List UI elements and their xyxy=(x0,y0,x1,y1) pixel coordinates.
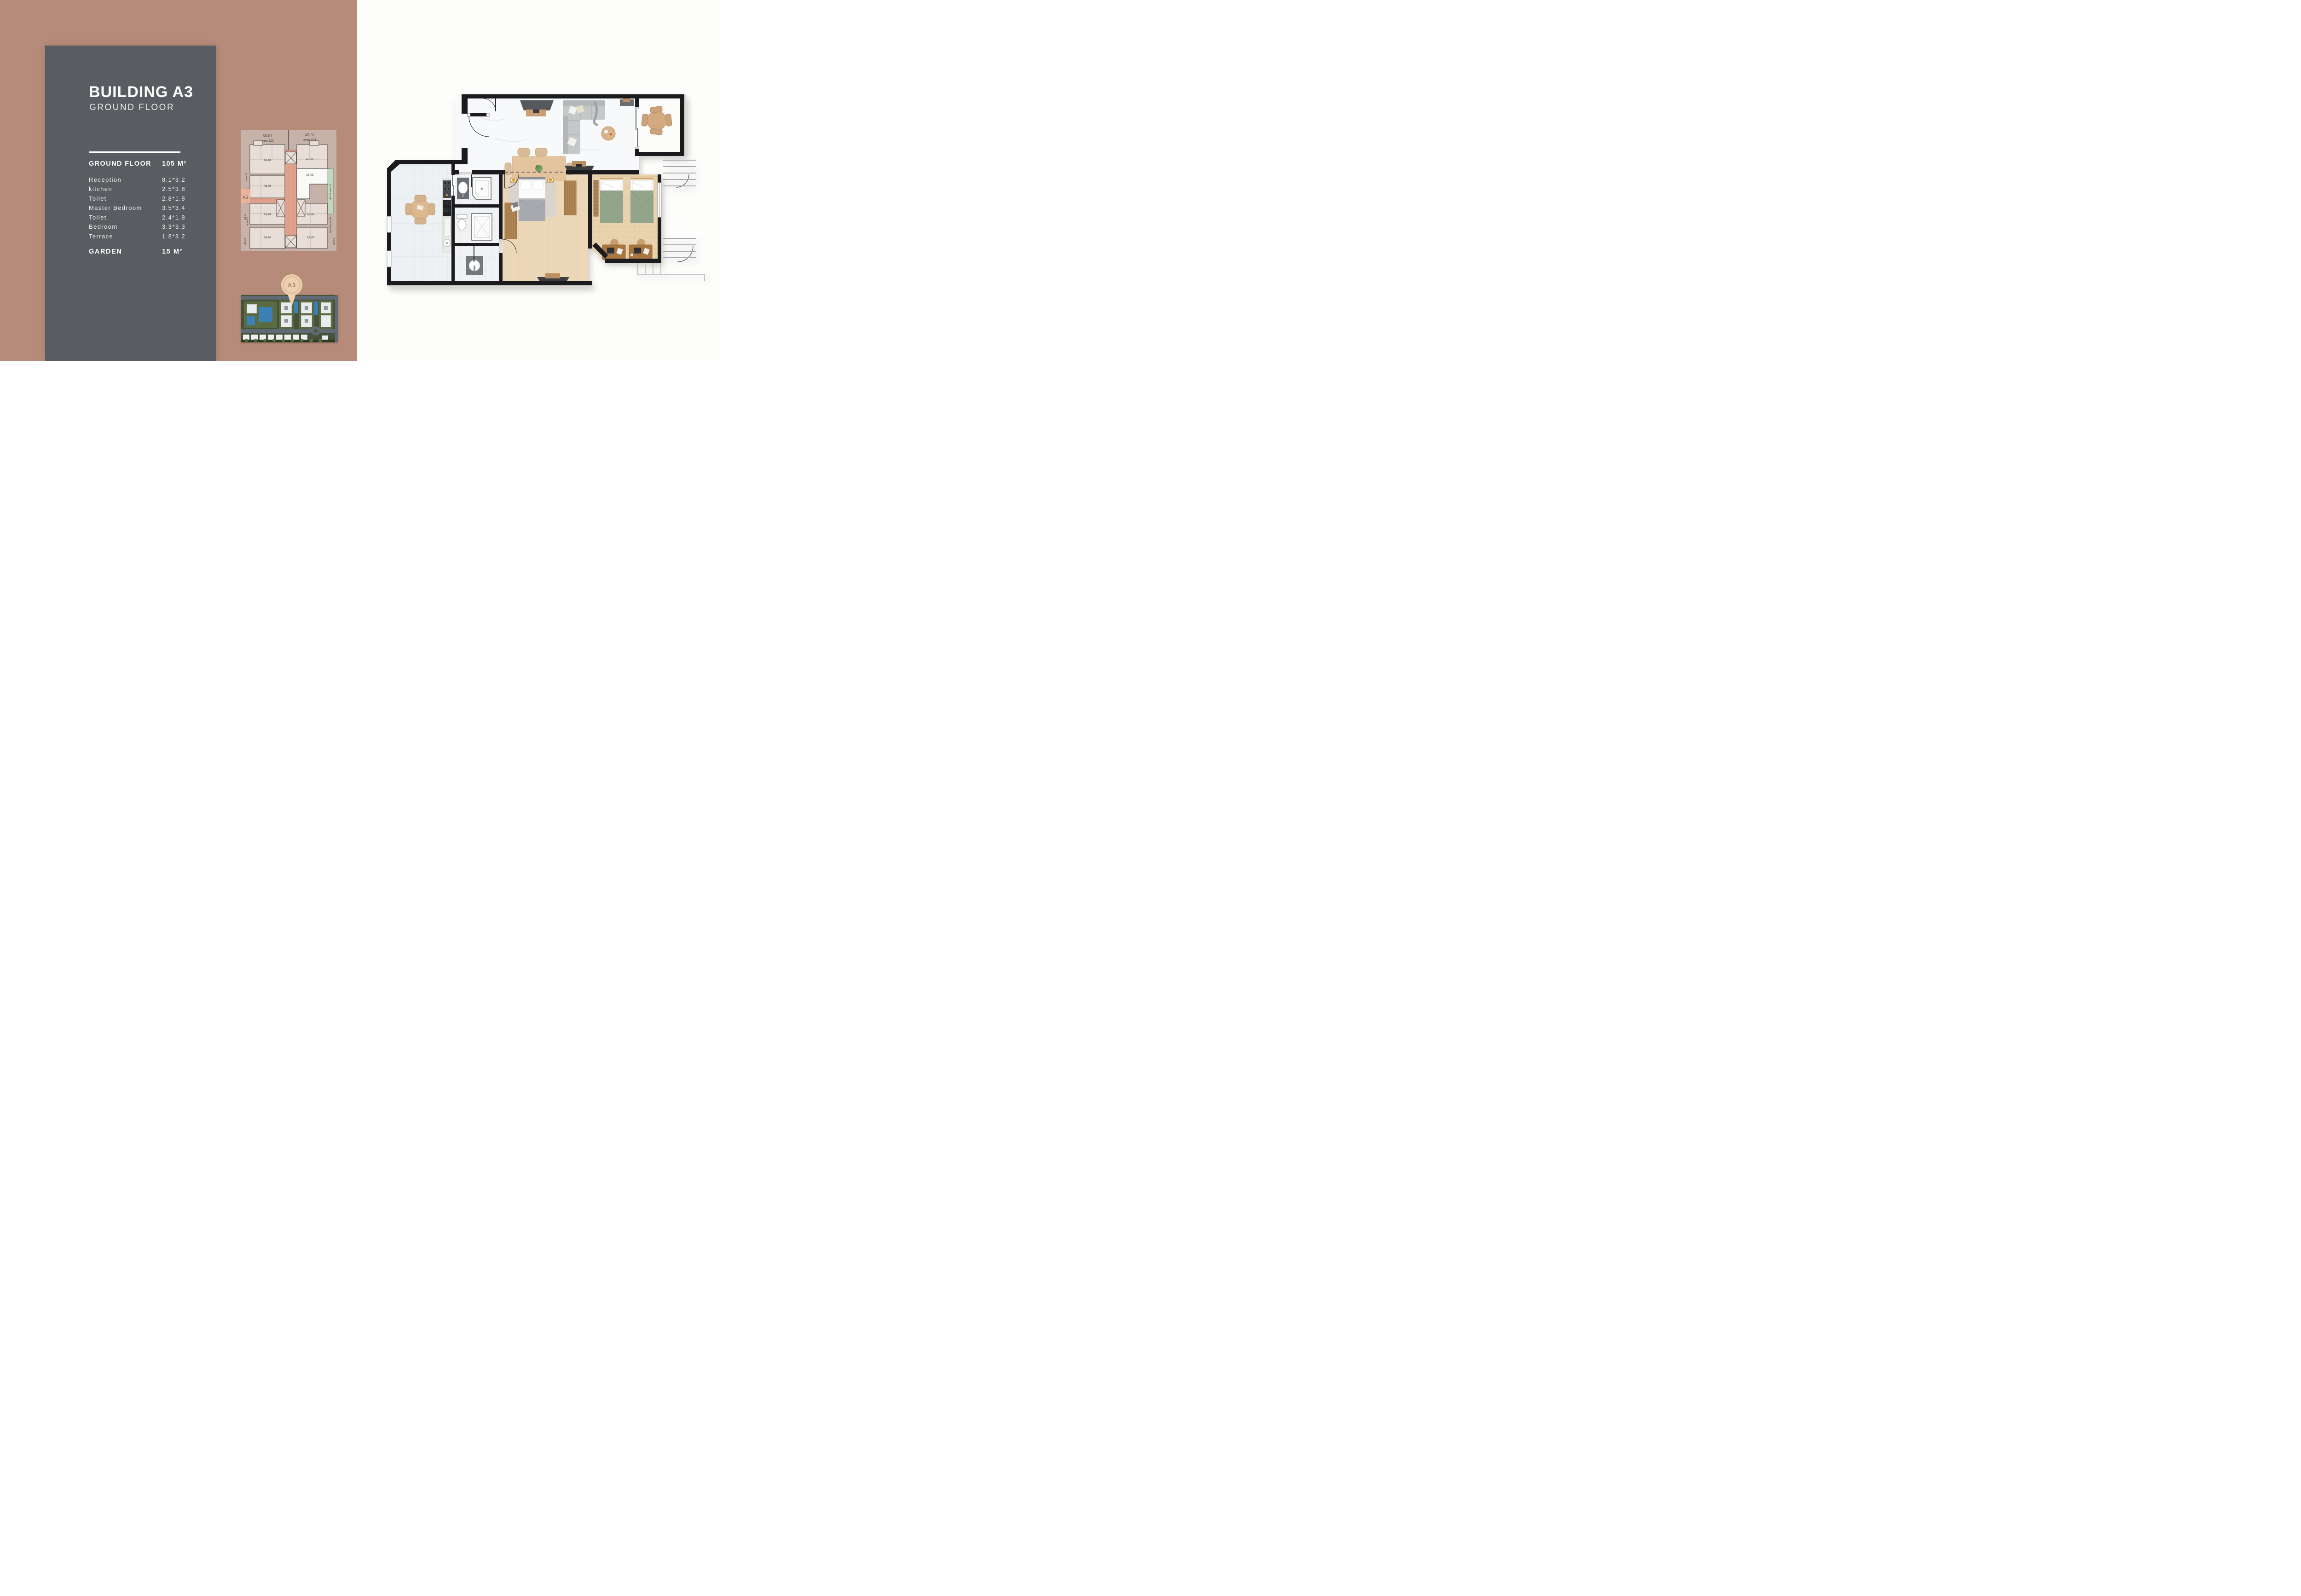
row-label: Bedroom xyxy=(89,223,162,230)
row-value: 2.5*3.8 xyxy=(162,185,185,192)
apartment-building xyxy=(321,315,331,327)
tree xyxy=(318,339,322,342)
wardrobe-strip xyxy=(594,180,598,216)
sink-drain xyxy=(446,242,448,244)
terrace-chair xyxy=(415,195,426,201)
wall-entry-left xyxy=(462,94,468,114)
roof-core xyxy=(324,306,328,310)
balcony-chair xyxy=(650,128,662,135)
lap-pool xyxy=(294,301,298,313)
svg-text:A3-05: A3-05 xyxy=(333,238,336,245)
table-tray xyxy=(416,205,424,211)
exterior-stairs-lower xyxy=(663,238,696,258)
table-row: kitchen 2.5*3.8 xyxy=(89,185,204,194)
washbasin xyxy=(458,182,468,194)
single-bed xyxy=(630,178,653,223)
table-row: Toilet 2.8*1.8 xyxy=(89,194,204,203)
row-label: Toilet xyxy=(89,214,162,221)
wall-top xyxy=(470,94,684,98)
garden-value: 15 M² xyxy=(162,248,183,255)
table-header-value: 105 M² xyxy=(162,160,187,168)
double-bed xyxy=(519,177,545,221)
roundabout-island xyxy=(314,329,318,333)
wall-bedroom-east xyxy=(658,174,661,183)
toilet-tank xyxy=(457,214,467,219)
wall-terrace-north xyxy=(395,160,468,164)
site-map-aerial xyxy=(241,295,338,342)
shower xyxy=(473,178,491,200)
tree xyxy=(282,339,285,342)
svg-text:A3-02: A3-02 xyxy=(306,158,314,161)
balcony-sliding-door xyxy=(635,107,639,149)
garden-fence xyxy=(637,263,705,281)
row-label: kitchen xyxy=(89,185,162,192)
kitchen-counter xyxy=(442,179,451,252)
page-title: BUILDING A3 xyxy=(89,83,193,101)
study-desk xyxy=(629,245,652,260)
wardrobe-right xyxy=(564,181,576,215)
building-entrance-tab: A3 xyxy=(241,189,250,203)
tab-label: A3 xyxy=(243,195,249,200)
terrace-chair xyxy=(415,218,426,224)
lap-pool xyxy=(314,301,318,315)
toilet-bowl xyxy=(458,219,466,230)
garden-row: GARDEN 15 M² xyxy=(89,248,204,255)
wall-bath-divider-2 xyxy=(455,243,499,246)
terrace-chair xyxy=(405,203,411,215)
row-label: Toilet xyxy=(89,195,162,202)
svg-text:A3-03: A3-03 xyxy=(306,173,314,177)
svg-text:area 15: area 15 xyxy=(245,173,248,181)
bathroom-top xyxy=(457,178,491,200)
table-plant-leaf xyxy=(536,165,538,168)
single-bed xyxy=(600,178,623,223)
tree xyxy=(300,339,303,342)
svg-text:A3-06: A3-06 xyxy=(264,236,272,239)
coffee-table xyxy=(601,127,615,140)
table-row: Master Bedroom 3.5*3.4 xyxy=(89,203,204,213)
villa xyxy=(284,335,291,340)
row-value: 2.8*1.8 xyxy=(162,195,185,202)
wall-terrace-divider xyxy=(451,164,455,175)
table-header-label: GROUND FLOOR xyxy=(89,160,162,168)
exterior-stairs-upper xyxy=(663,160,696,186)
balcony-chair xyxy=(665,114,672,126)
road-main xyxy=(241,329,338,333)
balcony-chair xyxy=(642,114,648,126)
info-panel: BUILDING A3 GROUND FLOOR GROUND FLOOR 10… xyxy=(45,46,216,361)
road-top xyxy=(241,296,338,300)
table-row: Bedroom 3.3*3.3 xyxy=(89,222,204,232)
key-header-right-unit: A3-02 xyxy=(305,133,315,137)
svg-text:area 21: area 21 xyxy=(246,217,249,226)
terrace-chair xyxy=(429,203,435,215)
row-value: 2.4*1.8 xyxy=(162,214,185,221)
clubhouse xyxy=(247,304,257,313)
wall-right-outer xyxy=(680,94,684,156)
row-value: 1.8*3.2 xyxy=(162,233,185,240)
brochure-page: BUILDING A3 GROUND FLOOR GROUND FLOOR 10… xyxy=(0,0,722,361)
small-pool xyxy=(247,316,255,325)
wall-lower-band xyxy=(472,170,505,174)
area-table: Reception 8.1*3.2 kitchen 2.5*3.8 Toilet… xyxy=(89,175,204,241)
svg-text:A3-04 area 18: A3-04 area 18 xyxy=(330,217,332,233)
induction-hob xyxy=(443,200,451,216)
shower-2 xyxy=(472,214,492,240)
area-table-header: GROUND FLOOR 105 M² xyxy=(89,160,204,168)
table-plant-leaf xyxy=(540,168,543,171)
table-row: Reception 8.1*3.2 xyxy=(89,175,204,185)
svg-text:A3-05: A3-05 xyxy=(307,236,315,239)
window-east xyxy=(658,183,661,217)
tree xyxy=(309,339,313,342)
main-pool xyxy=(259,307,272,322)
garden-label: GARDEN xyxy=(89,248,162,255)
wall-bottom xyxy=(387,281,592,285)
svg-text:A3-08: A3-08 xyxy=(264,185,272,188)
roof-core xyxy=(284,319,288,323)
building-key-plan: A3-01 area 120 A3-02 area 104 xyxy=(241,130,336,251)
roof-core xyxy=(305,306,308,310)
faucet-2 xyxy=(474,266,475,271)
tree xyxy=(272,339,276,342)
wall-balcony-divider xyxy=(635,94,639,108)
tree xyxy=(291,339,294,342)
svg-text:A3-03 area 18: A3-03 area 18 xyxy=(330,184,332,200)
roof-core xyxy=(305,319,308,323)
wall-bedroom-bottom xyxy=(605,259,661,263)
row-value: 8.1*3.2 xyxy=(162,176,185,183)
divider-rule xyxy=(89,151,180,153)
row-label: Terrace xyxy=(89,233,162,240)
key-header-left-unit: A3-01 xyxy=(262,134,272,138)
wall-balcony-bottom xyxy=(635,152,684,156)
row-label: Master Bedroom xyxy=(89,204,162,211)
row-value: 3.5*3.4 xyxy=(162,204,185,211)
gas-hob xyxy=(443,180,451,198)
roof-core xyxy=(284,306,288,310)
wall-bath-divider xyxy=(455,204,499,208)
table-row: Toilet 2.4*1.8 xyxy=(89,213,204,222)
page-subtitle: GROUND FLOOR xyxy=(89,103,174,113)
svg-text:A3-04: A3-04 xyxy=(307,213,315,216)
apartment-floor-plan xyxy=(357,0,722,361)
tree xyxy=(254,339,257,342)
key-plan-drawing: A3-01 area 120 A3-02 area 104 xyxy=(241,130,336,251)
svg-text:A3-07: A3-07 xyxy=(264,213,272,216)
faucet xyxy=(462,193,464,197)
terrace-slider xyxy=(451,175,455,196)
svg-text:A3-08: A3-08 xyxy=(244,238,247,245)
wall-bedroom-divider xyxy=(588,174,592,249)
table-lamp xyxy=(548,178,552,182)
tree xyxy=(245,339,248,342)
table-lamp xyxy=(511,178,515,182)
wall-bath-bedroom xyxy=(499,174,503,239)
tree xyxy=(263,339,266,342)
row-value: 3.3*3.3 xyxy=(162,223,185,230)
wall-west xyxy=(387,168,391,216)
row-label: Reception xyxy=(89,176,162,183)
road-right-edge xyxy=(335,295,338,342)
table-row: Terrace 1.8*3.2 xyxy=(89,231,204,241)
svg-text:A3-01: A3-01 xyxy=(264,159,272,162)
